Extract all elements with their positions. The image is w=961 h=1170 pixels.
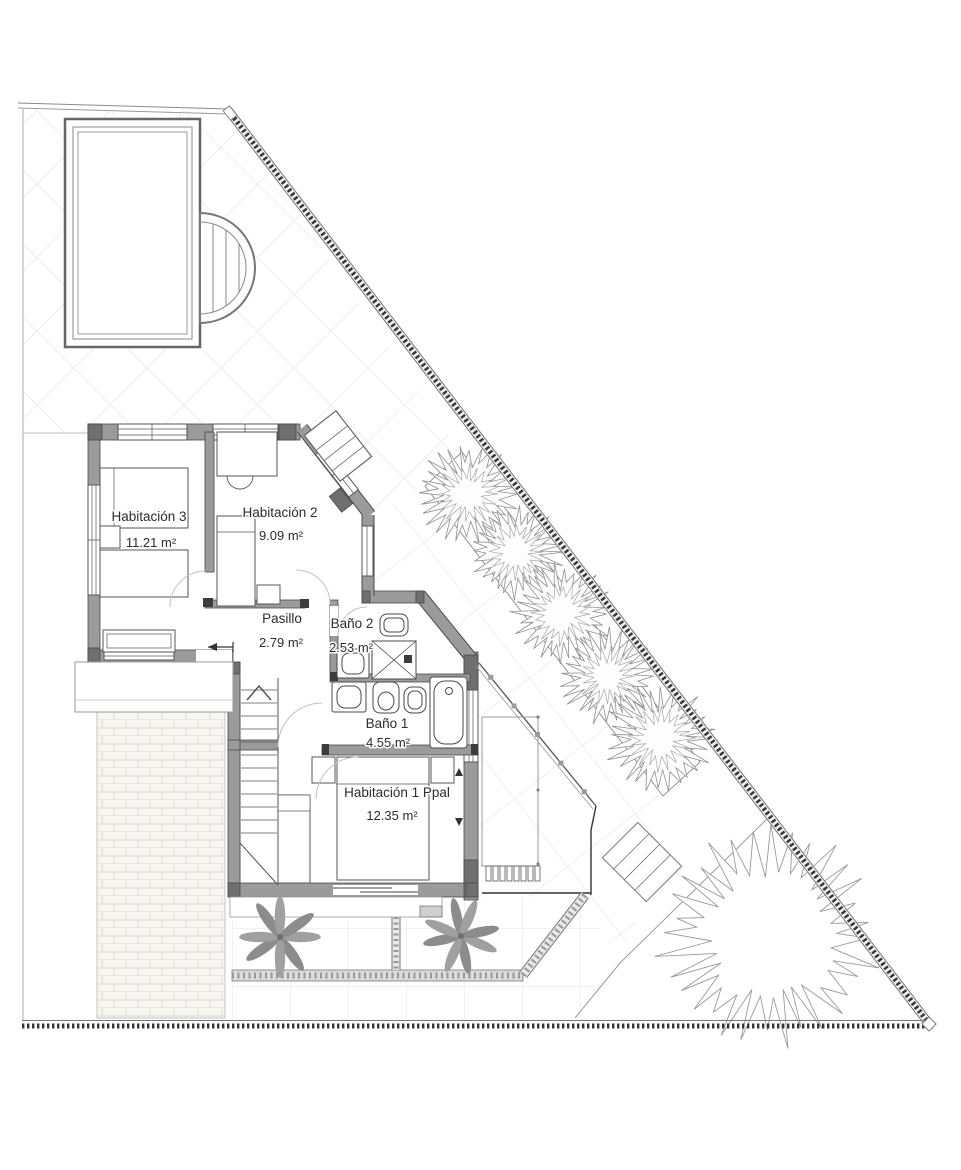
table-hab2 [257, 585, 280, 604]
floor-plan-canvas: Habitación 3 11.21 m² Habitación 2 9.09 … [0, 0, 961, 1170]
nightstand-hab3 [100, 526, 120, 548]
room-area-habitacion-2: 9.09 m² [259, 528, 304, 543]
room-label-pasillo: Pasillo [262, 611, 302, 626]
nightstand-hab1-left [312, 757, 335, 783]
floor-plan-page: Habitación 3 11.21 m² Habitación 2 9.09 … [0, 0, 961, 1170]
walkway-step [420, 906, 442, 917]
room-label-habitacion-3: Habitación 3 [111, 509, 186, 524]
room-area-habitacion-3: 11.21 m² [126, 535, 177, 550]
room-label-bano-2: Baño 2 [331, 616, 374, 631]
room-label-habitacion-2: Habitación 2 [242, 505, 317, 520]
large-tree [655, 824, 879, 1048]
entry-porch [75, 662, 233, 712]
room-area-habitacion-1: 12.35 m² [366, 808, 418, 823]
brick-driveway [97, 712, 225, 1018]
room-area-bano-1: 4.55 m² [366, 735, 411, 750]
room-label-habitacion-1: Habitación 1 Ppal [344, 785, 450, 800]
room-area-pasillo: 2.79 m² [259, 635, 304, 650]
nightstand-hab1-right [431, 757, 454, 783]
bed-hab2 [217, 516, 255, 606]
room-area-bano-2: 2.53 m² [329, 640, 374, 655]
room-label-bano-1: Baño 1 [366, 716, 409, 731]
wardrobe-hab2 [217, 432, 277, 476]
bed-hab3-2 [100, 550, 188, 597]
shower-drain [404, 655, 412, 663]
